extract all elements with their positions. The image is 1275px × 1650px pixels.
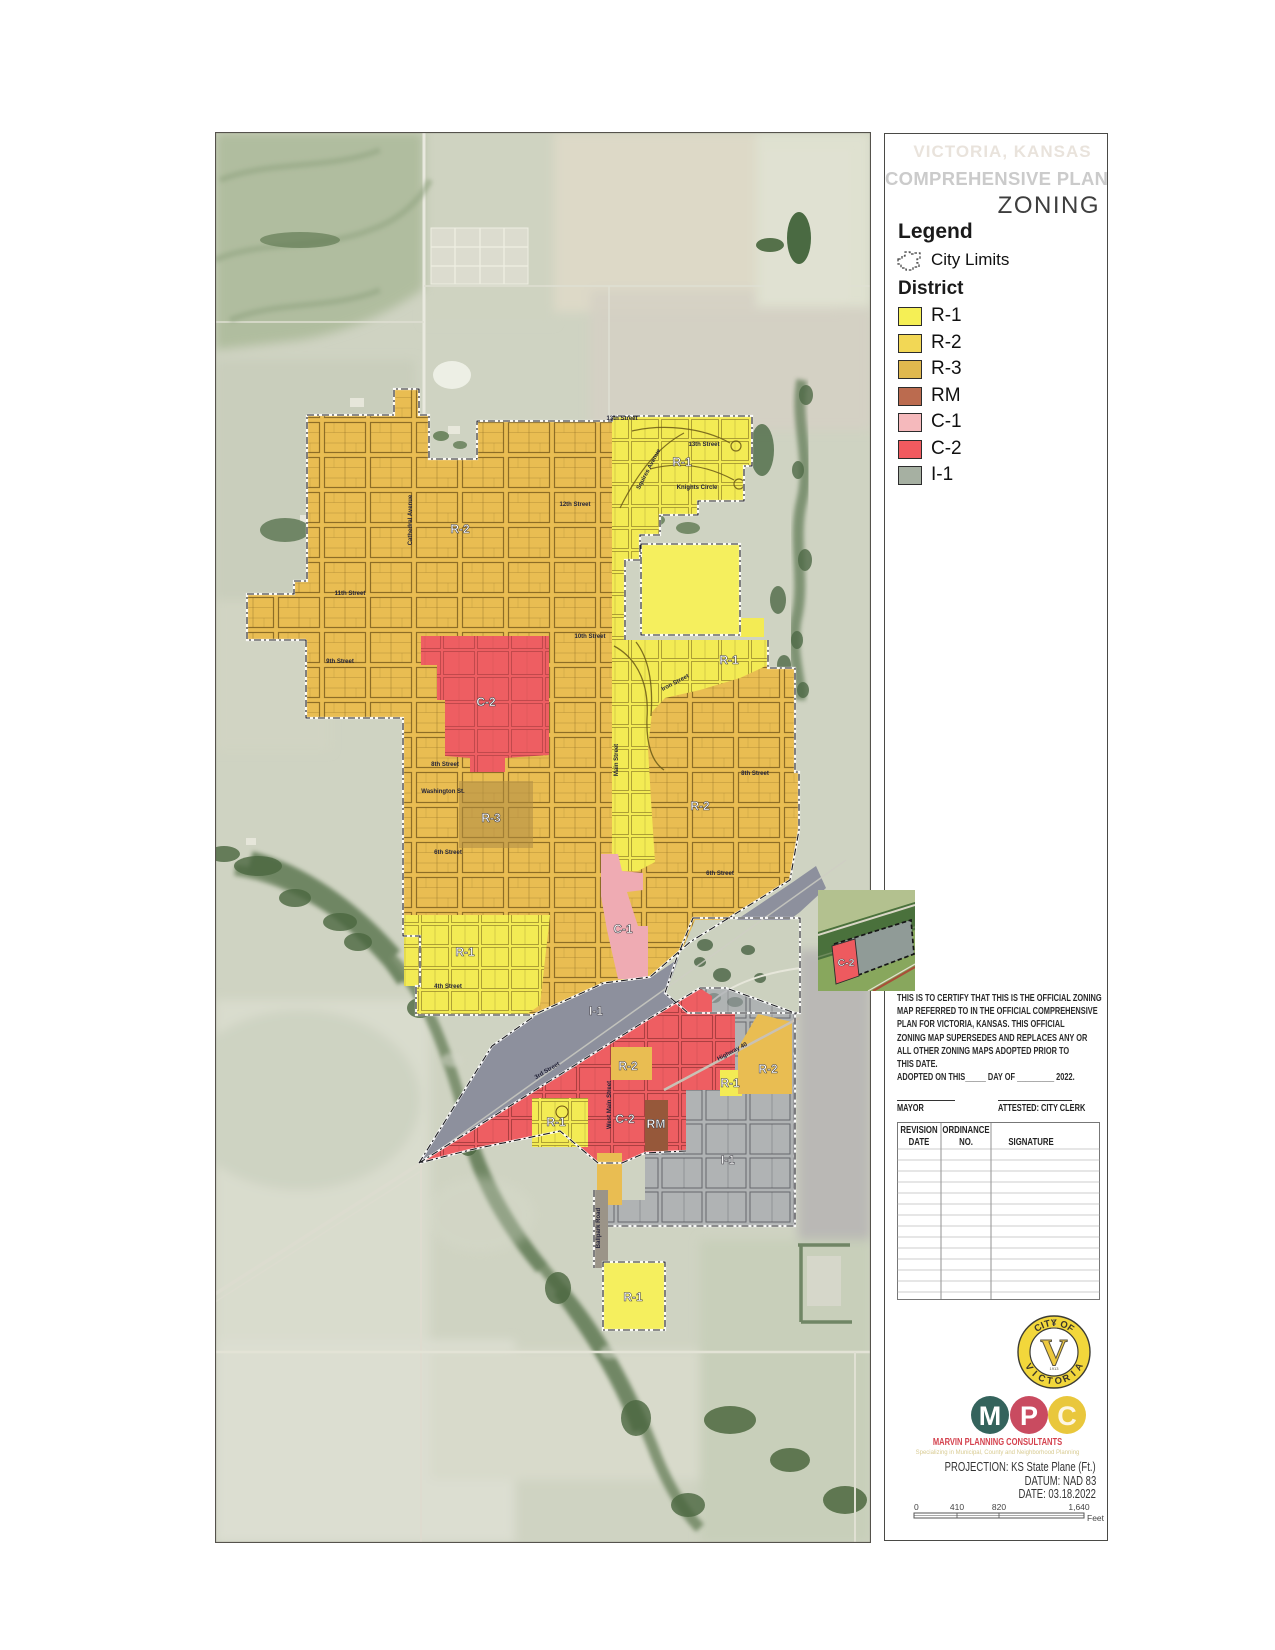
svg-text:M: M: [979, 1401, 1002, 1431]
svg-text:R-1: R-1: [672, 455, 692, 469]
svg-text:R-1: R-1: [719, 653, 739, 667]
svg-text:6th Street: 6th Street: [434, 850, 462, 856]
svg-text:R-2: R-2: [690, 799, 710, 813]
svg-text:C-1: C-1: [613, 922, 633, 936]
svg-text:Knights Circle: Knights Circle: [677, 485, 718, 491]
svg-text:Ballpark Road: Ballpark Road: [596, 1208, 602, 1249]
svg-text:C-2: C-2: [615, 1112, 635, 1126]
svg-text:C-2: C-2: [838, 957, 855, 969]
svg-text:NO.: NO.: [959, 1136, 973, 1147]
svg-text:12th Street: 12th Street: [559, 502, 590, 508]
svg-text:West Main Street: West Main Street: [607, 1081, 613, 1129]
svg-text:R-2: R-2: [450, 522, 470, 536]
svg-text:R-3: R-3: [481, 811, 501, 825]
svg-text:C: C: [1057, 1401, 1077, 1431]
svg-text:REVISION: REVISION: [900, 1124, 937, 1135]
svg-text:0: 0: [914, 1502, 919, 1512]
svg-text:1913: 1913: [1050, 1366, 1060, 1371]
svg-text:I-1: I-1: [589, 1004, 603, 1018]
svg-text:8th Street: 8th Street: [741, 771, 769, 777]
svg-text:8th Street: 8th Street: [431, 762, 459, 768]
svg-text:ORDINANCE: ORDINANCE: [942, 1124, 989, 1135]
svg-text:10th Street: 10th Street: [574, 634, 605, 640]
svg-text:Main Street: Main Street: [614, 744, 620, 776]
svg-text:R-1: R-1: [546, 1115, 566, 1129]
svg-text:410: 410: [950, 1502, 964, 1512]
svg-text:R-1: R-1: [623, 1290, 643, 1304]
svg-text:4th Street: 4th Street: [434, 984, 462, 990]
svg-text:11th Street: 11th Street: [335, 591, 366, 597]
svg-text:Washington St.: Washington St.: [421, 789, 465, 795]
svg-text:9th Street: 9th Street: [326, 659, 354, 665]
svg-text:P: P: [1020, 1401, 1038, 1431]
svg-text:DATE: DATE: [909, 1136, 930, 1147]
svg-text:SIGNATURE: SIGNATURE: [1008, 1136, 1053, 1147]
svg-text:Feet: Feet: [1087, 1513, 1105, 1523]
svg-text:I-1: I-1: [721, 1153, 735, 1167]
svg-text:RM: RM: [647, 1117, 666, 1131]
svg-text:R-1: R-1: [455, 945, 475, 959]
svg-text:13th Street: 13th Street: [606, 416, 637, 422]
svg-text:820: 820: [992, 1502, 1006, 1512]
svg-text:R-2: R-2: [618, 1059, 638, 1073]
svg-text:R-1: R-1: [720, 1076, 740, 1090]
svg-text:1,640: 1,640: [1068, 1502, 1090, 1512]
svg-text:6th Street: 6th Street: [706, 871, 734, 877]
svg-text:C-2: C-2: [476, 695, 496, 709]
svg-text:R-2: R-2: [758, 1062, 778, 1076]
svg-text:13th Street: 13th Street: [688, 442, 719, 448]
svg-text:Cathedral Avenue: Cathedral Avenue: [408, 494, 414, 545]
